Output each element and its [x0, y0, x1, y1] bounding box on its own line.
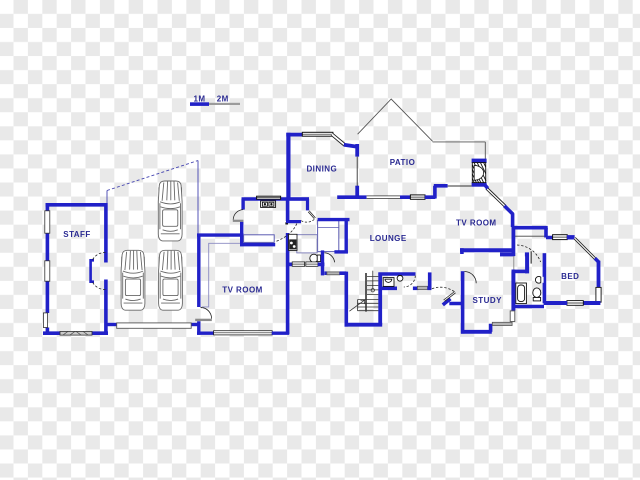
svg-text:TV ROOM: TV ROOM	[222, 285, 262, 294]
svg-text:LOUNGE: LOUNGE	[370, 234, 407, 243]
svg-text:DINING: DINING	[306, 165, 337, 174]
svg-text:BED: BED	[561, 272, 579, 281]
svg-text:PATIO: PATIO	[390, 158, 416, 167]
svg-text:2M: 2M	[217, 95, 229, 104]
svg-text:STAFF: STAFF	[63, 230, 90, 239]
svg-text:1M: 1M	[193, 95, 205, 104]
svg-text:STUDY: STUDY	[473, 296, 503, 305]
svg-text:TV ROOM: TV ROOM	[456, 219, 496, 228]
